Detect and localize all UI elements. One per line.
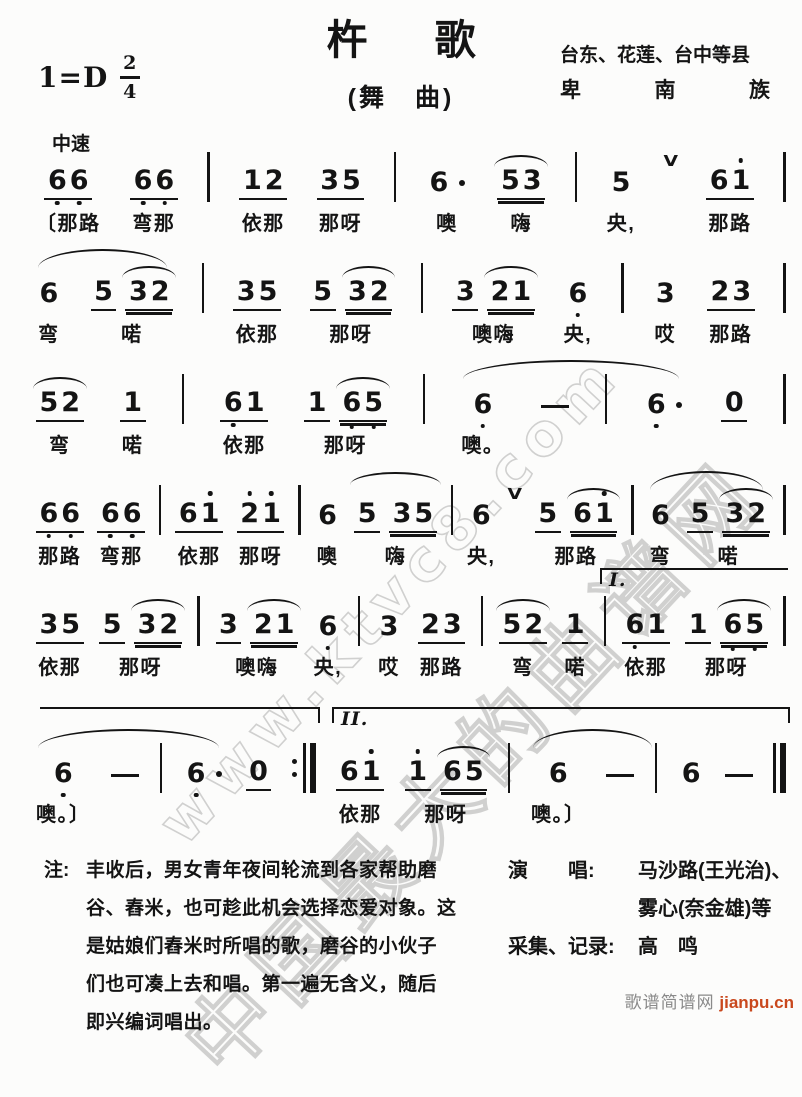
note-tokens — [631, 485, 634, 533]
note-token: 6 — [36, 280, 62, 311]
note-tokens: 6 — [426, 152, 468, 200]
note-digit: 1 — [689, 611, 708, 638]
lyric: 那呀 — [119, 651, 162, 678]
note-token: 6 — [50, 760, 76, 791]
site-name: 歌谱简谱网 — [625, 993, 715, 1012]
note-cell: 6噢 — [315, 485, 341, 567]
note-digit: 6 — [70, 167, 89, 194]
note-cell: 0 — [721, 374, 747, 456]
barline-cell — [182, 374, 185, 456]
note-digit: 1 — [408, 758, 427, 785]
note-cell: 5央, — [607, 152, 636, 234]
note-tokens: 6 — [545, 743, 571, 791]
volta-label: I. — [609, 569, 627, 591]
barline-cell — [604, 596, 607, 678]
barline — [783, 485, 786, 535]
note-digit: 2 — [524, 611, 543, 638]
note-token: 32 — [345, 278, 393, 311]
duration-dash — [725, 774, 753, 778]
volta-bracket: II. — [332, 707, 790, 723]
note-digit: 2 — [747, 500, 766, 527]
note-tokens: 1 — [120, 374, 146, 422]
music-system: 6弯532喏35依那532那呀321噢嗨6央,3哎23那路 — [36, 263, 786, 345]
note-digit: 6 — [179, 500, 198, 527]
collector-value: 高 鸣 — [638, 928, 698, 966]
note-digit: 6 — [40, 280, 59, 307]
note-cell: 66弯那 — [130, 152, 178, 234]
note-tokens — [605, 374, 608, 422]
note-cell: 61那路 — [706, 152, 754, 234]
volta-bracket: I. — [600, 568, 788, 584]
repeat-dot — [292, 772, 297, 777]
note-cell: 61依那 — [336, 743, 384, 825]
barline-cell — [292, 743, 316, 825]
note-token: 35 — [389, 500, 437, 533]
footnote-line: 即兴编词唱出。 — [86, 1004, 457, 1042]
note-digit: 6 — [568, 280, 587, 307]
footnote-line: 是姑娘们舂米时所唱的歌，磨谷的小伙子 — [86, 928, 457, 966]
barline — [783, 152, 786, 202]
thick-bar — [310, 743, 316, 793]
note-tokens — [621, 263, 624, 311]
augmentation-dot — [216, 771, 222, 777]
note-tokens — [783, 152, 786, 200]
performer-label: 演 唱: — [508, 852, 638, 890]
note-digit: 6 — [123, 500, 142, 527]
note-digit: 1 — [512, 278, 531, 305]
octave-dot-below — [350, 425, 355, 430]
barline — [197, 596, 200, 646]
thin-bar — [303, 743, 306, 793]
barline-cell — [421, 263, 424, 345]
note-tokens: 12 — [239, 152, 287, 200]
lyric: 哎 — [378, 651, 400, 678]
note-cell: 535嗨 — [354, 485, 436, 567]
note-digit: 6 — [651, 502, 670, 529]
note-tokens — [725, 743, 753, 791]
octave-dot-above — [208, 491, 213, 496]
octave-dot-below — [371, 425, 376, 430]
note-tokens: 532 — [310, 263, 392, 311]
barline-cell — [783, 374, 786, 456]
note-tokens: 532 — [687, 485, 769, 533]
note-digit: 5 — [538, 500, 557, 527]
final-barline — [773, 743, 786, 793]
note-tokens — [207, 152, 210, 200]
note-digit: 3 — [320, 167, 339, 194]
note-digit: 2 — [254, 611, 273, 638]
note-tokens — [451, 485, 454, 533]
note-digit: 6 — [472, 502, 491, 529]
repeat-dots — [292, 759, 297, 777]
key-value: 1=D — [38, 61, 108, 94]
octave-dot-below — [576, 313, 581, 318]
note-tokens: 6 — [678, 743, 704, 791]
note-cell: 3哎 — [652, 263, 678, 345]
note-tokens: 52 — [36, 374, 84, 422]
lyric: 哎 — [655, 318, 677, 345]
octave-dot-below — [55, 201, 60, 206]
note-cell: 23那路 — [707, 263, 755, 345]
note-digit: 3 — [656, 280, 675, 307]
note-cell: 321噢嗨 — [452, 263, 534, 345]
footnote-text: 丰收后，男女青年夜间轮流到各家帮助磨 谷、舂米，也可趁此机会选择恋爱对象。这 是… — [86, 852, 457, 1042]
note-tokens: 165 — [304, 374, 386, 422]
note-digit: 6 — [61, 500, 80, 527]
barline — [182, 374, 185, 424]
lyric: 喏 — [122, 429, 144, 456]
note-tokens: 35 — [36, 596, 84, 644]
note-token: 61 — [336, 758, 384, 791]
note-tokens: 6 — [643, 374, 685, 422]
breath-mark: V — [664, 152, 679, 200]
note-tokens — [358, 596, 361, 644]
note-token: 6 — [315, 613, 341, 644]
note-cell: 6 — [183, 743, 225, 825]
barline — [621, 263, 624, 313]
note-cell: 52弯 — [36, 374, 84, 456]
tie-arc — [484, 266, 538, 278]
note-token: 5 — [310, 278, 336, 311]
note-digit: 3 — [219, 611, 238, 638]
octave-dot-below — [654, 424, 659, 429]
lyric: 那路 — [709, 318, 752, 345]
note-tokens — [202, 263, 205, 311]
note-digit: 3 — [138, 611, 157, 638]
octave-dot-below — [194, 793, 199, 798]
barline — [394, 152, 397, 202]
note-tokens: 6 — [565, 263, 591, 311]
lyric: 那呀 — [319, 207, 362, 234]
lyric: 那呀 — [329, 318, 372, 345]
note-tokens: 35 — [317, 152, 365, 200]
note-tokens: 6 — [183, 743, 225, 791]
credits: 演 唱: 马沙路(王光治)、 雾心(奈金雄)等 采集、记录: 高 鸣 — [508, 852, 792, 1042]
note-cell: 66那路 — [36, 485, 84, 567]
note-tokens: 6 — [468, 485, 494, 533]
note-digit: 1 — [566, 611, 585, 638]
dash-cell — [606, 743, 634, 825]
barline-cell — [197, 596, 200, 678]
note-digit: 0 — [725, 389, 744, 416]
note-digit: 1 — [246, 389, 265, 416]
note-digit: 5 — [61, 611, 80, 638]
lyric: 依那 — [236, 318, 279, 345]
note-tokens: 6 — [315, 485, 341, 533]
note-cell: 532喏 — [687, 485, 769, 567]
note-digit: 6 — [134, 167, 153, 194]
note-token: 12 — [239, 167, 287, 200]
note-tokens: 0 — [246, 743, 272, 791]
tie-arc — [336, 377, 390, 389]
site-credit: 歌谱简谱网 jianpu.cn — [625, 988, 794, 1013]
barline-cell — [358, 596, 361, 678]
note-tokens — [111, 743, 139, 791]
collector-label: 采集、记录: — [508, 928, 638, 966]
barline — [451, 485, 454, 535]
octave-dot-below — [77, 201, 82, 206]
note-digit: 5 — [313, 278, 332, 305]
note-tokens: 66 — [36, 485, 84, 533]
note-digit: 1 — [595, 500, 614, 527]
score: 66〔那路66弯那12依那35那呀6噢53嗨5央,V61那路6弯532喏35依那… — [36, 152, 786, 825]
note-cell: 6弯 — [36, 263, 62, 345]
note-token: 5 — [99, 611, 125, 644]
note-digit: 6 — [48, 167, 67, 194]
octave-dot-below — [326, 646, 331, 651]
note-digit: 1 — [123, 389, 142, 416]
source-block: 台东、花莲、台中等县 卑南族 — [560, 40, 776, 104]
note-digit: 6 — [155, 167, 174, 194]
performer-label-2 — [508, 890, 638, 928]
repeat-end-barline — [292, 743, 316, 793]
key-signature: 1=D 2 4 — [38, 52, 140, 103]
note-tokens: 165 — [685, 596, 767, 644]
note-digit: 3 — [393, 500, 412, 527]
music-system: 66那路66弯那61依那21那呀6噢535嗨6央,V561那路6弯532喏 — [36, 485, 786, 567]
note-digit: 2 — [159, 611, 178, 638]
note-digit: 3 — [129, 278, 148, 305]
octave-dot-below — [752, 647, 757, 652]
note-digit: 6 — [319, 613, 338, 640]
note-token: 61 — [175, 500, 223, 533]
note-cell: 12依那 — [239, 152, 287, 234]
note-token: 66 — [44, 167, 92, 200]
note-tokens: 3 — [652, 263, 678, 311]
notes-section: 注: 丰收后，男女青年夜间轮流到各家帮助磨 谷、舂米，也可趁此机会选择恋爱对象。… — [44, 852, 792, 1042]
note-cell: 61依那 — [622, 596, 670, 678]
lyric: 弯 — [650, 540, 672, 567]
barline-cell — [783, 485, 786, 567]
lyric: 弯 — [38, 318, 60, 345]
tie-arc — [717, 599, 771, 611]
note-tokens — [508, 743, 511, 791]
tie-arc — [131, 599, 185, 611]
barline — [202, 263, 205, 313]
barline-cell — [783, 263, 786, 345]
note-digit: 6 — [224, 389, 243, 416]
note-digit: 6 — [40, 500, 59, 527]
note-digit: 2 — [491, 278, 510, 305]
note-digit: 3 — [732, 278, 751, 305]
note-digit: 5 — [358, 500, 377, 527]
lyric: 那路 — [420, 651, 463, 678]
note-digit: 2 — [61, 389, 80, 416]
note-tokens — [606, 743, 634, 791]
barline — [605, 374, 608, 424]
note-cell: 66弯那 — [97, 485, 145, 567]
note-token: 61 — [622, 611, 670, 644]
note-digit: 1 — [732, 167, 751, 194]
tie-arc — [247, 599, 301, 611]
note-digit: 3 — [443, 611, 462, 638]
octave-dot-below — [130, 534, 135, 539]
note-tokens: 1 — [562, 596, 588, 644]
barline-cell — [508, 743, 511, 825]
augmentation-dot — [676, 402, 682, 408]
lyric: 弯那 — [100, 540, 143, 567]
volta-label: II. — [341, 708, 368, 730]
note-token: 6 — [183, 760, 225, 791]
credit-row: 雾心(奈金雄)等 — [508, 890, 792, 928]
octave-dot-below — [481, 424, 486, 429]
note-digit: 6 — [549, 760, 568, 787]
note-tokens — [783, 485, 786, 533]
note-digit: 5 — [364, 389, 383, 416]
lyric: 央, — [564, 318, 593, 345]
barline-cell — [207, 152, 210, 234]
note-digit: 3 — [237, 278, 256, 305]
note-token: 6 — [426, 169, 468, 200]
note-token: 32 — [722, 500, 770, 533]
note-token: 5 — [687, 500, 713, 533]
note-cell: 6噢。〕 — [531, 743, 586, 825]
octave-dot-below — [633, 645, 638, 650]
barline — [159, 485, 162, 535]
note-cell: 6 — [678, 743, 704, 825]
note-token: 23 — [418, 611, 466, 644]
note-token: 61 — [220, 389, 268, 422]
note-token: 5 — [91, 278, 117, 311]
note-token: 65 — [720, 611, 768, 644]
barline-cell — [773, 743, 786, 825]
note-digit: 6 — [187, 760, 206, 787]
note-digit: 1 — [647, 611, 666, 638]
barline-cell — [481, 596, 484, 678]
breath-mark: V — [508, 485, 523, 533]
fraction-bar — [120, 76, 140, 79]
note-tokens: 6 — [36, 263, 62, 311]
tie-arc — [342, 266, 396, 278]
note-digit: 5 — [259, 278, 278, 305]
note-digit: 0 — [249, 758, 268, 785]
octave-dot-above — [739, 158, 744, 163]
note-token: 23 — [707, 278, 755, 311]
lyric: 依那 — [624, 651, 667, 678]
note-token: 52 — [499, 611, 547, 644]
barline — [655, 743, 658, 793]
note-token: 32 — [125, 278, 173, 311]
slur-arc — [650, 471, 763, 490]
note-token: 6 — [565, 280, 591, 311]
performer-value: 马沙路(王光治)、 — [638, 852, 791, 890]
lyric: 那呀 — [705, 651, 748, 678]
duration-dash — [111, 774, 139, 778]
note-token: 5 — [535, 500, 561, 533]
barline — [631, 485, 634, 535]
note-token: 35 — [36, 611, 84, 644]
note-token: 1 — [405, 758, 431, 791]
note-token: 3 — [652, 280, 678, 311]
note-digit: 6 — [647, 391, 666, 418]
note-token: 6 — [315, 502, 341, 533]
lyric: 喏 — [718, 540, 740, 567]
slur-arc — [350, 472, 440, 485]
note-tokens — [575, 152, 578, 200]
lyric: 弯那 — [132, 207, 175, 234]
barline-cell — [621, 263, 624, 345]
music-system: 66〔那路66弯那12依那35那呀6噢53嗨5央,V61那路 — [36, 152, 786, 234]
note-digit: 1 — [201, 500, 220, 527]
footnote-label: 注: — [44, 852, 86, 1042]
tie-arc — [567, 488, 621, 500]
lyric: 依那 — [339, 798, 382, 825]
note-cell: 165那呀 — [405, 743, 487, 825]
note-cell: 532那呀 — [99, 596, 181, 678]
note-digit: 5 — [342, 167, 361, 194]
note-digit: 2 — [240, 500, 259, 527]
barline-cell — [423, 374, 426, 456]
barline — [160, 743, 163, 793]
augmentation-dot — [459, 180, 465, 186]
note-token: 0 — [721, 389, 747, 422]
note-digit: 6 — [724, 611, 743, 638]
slur-arc — [38, 729, 219, 748]
note-tokens: 61 — [622, 596, 670, 644]
duration-dash — [606, 774, 634, 778]
note-digit: 3 — [348, 278, 367, 305]
note-digit: 5 — [612, 169, 631, 196]
note-token: 35 — [233, 278, 281, 311]
note-digit: 5 — [465, 758, 484, 785]
note-tokens — [159, 485, 162, 533]
region-text: 台东、花莲、台中等县 — [560, 40, 776, 67]
note-token: 6 — [468, 502, 494, 533]
lyric: 弯 — [49, 429, 71, 456]
thick-bar — [780, 743, 786, 793]
barline-cell — [631, 485, 634, 567]
barline — [783, 263, 786, 313]
lyric: 噢 — [436, 207, 458, 234]
note-digit: 6 — [101, 500, 120, 527]
octave-dot-above — [247, 491, 252, 496]
note-tokens: 321 — [216, 596, 298, 644]
note-digit: 5 — [40, 389, 59, 416]
music-system: 52弯1喏61依那165那呀6噢。60 — [36, 374, 786, 456]
note-tokens: 23 — [418, 596, 466, 644]
lyric: 那路 — [38, 540, 81, 567]
lyric: 噢。 — [461, 429, 504, 456]
note-cell: 53嗨 — [497, 152, 545, 234]
note-token: 66 — [36, 500, 84, 533]
octave-dot-below — [68, 534, 73, 539]
performer-value-2: 雾心(奈金雄)等 — [638, 890, 771, 928]
note-token: 3 — [376, 613, 402, 644]
note-digit: 2 — [151, 278, 170, 305]
note-token: 1 — [685, 611, 711, 644]
note-digit: 6 — [625, 611, 644, 638]
lyric: 依那 — [38, 651, 81, 678]
note-digit: 6 — [342, 389, 361, 416]
lyric: 弯 — [512, 651, 534, 678]
note-digit: 5 — [691, 500, 710, 527]
note-digit: 6 — [54, 760, 73, 787]
ethnic-char: 南 — [655, 74, 676, 104]
breath-cell: V — [509, 485, 521, 567]
note-cell: 35依那 — [233, 263, 281, 345]
note-token: 5 — [608, 169, 634, 200]
note-cell: 6噢。〕 — [36, 743, 91, 825]
music-system: 35依那532那呀321噢嗨6央,3哎23那路52弯1喏61依那165那呀I. — [36, 596, 786, 678]
note-token: 32 — [134, 611, 182, 644]
octave-dot-below — [231, 423, 236, 428]
note-tokens: 6 — [648, 485, 674, 533]
barline — [423, 374, 426, 424]
note-tokens: 535 — [354, 485, 436, 533]
lyric: 嗨 — [385, 540, 407, 567]
note-digit: 1 — [276, 611, 295, 638]
octave-dot-below — [141, 201, 146, 206]
